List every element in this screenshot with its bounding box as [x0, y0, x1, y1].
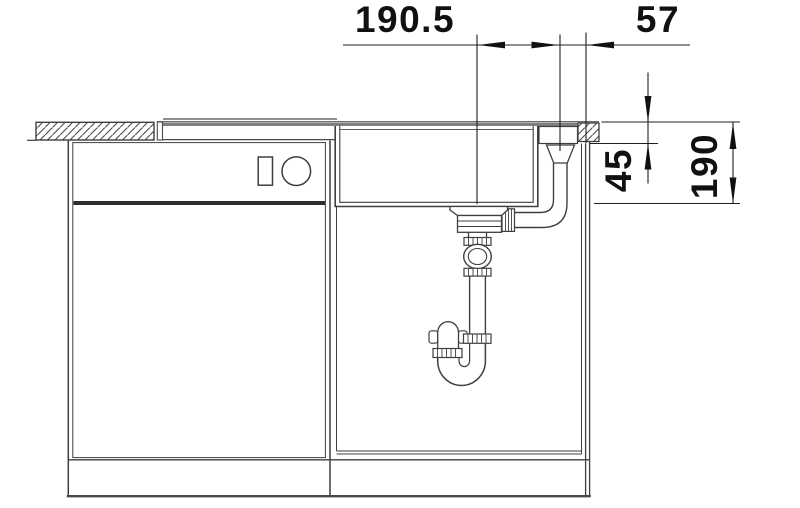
- dimension-label-bowl-depth: 190: [685, 106, 725, 226]
- arrow-down-190: [730, 178, 737, 204]
- arrow-up-190: [730, 123, 737, 149]
- arrow-left-57: [587, 42, 614, 49]
- wing-screw-left: [429, 331, 438, 343]
- dimension-label-edge-offset: 57: [598, 0, 718, 40]
- left-cabinet: [68, 141, 330, 497]
- siphon-trap: [429, 238, 491, 386]
- strainer-body: [458, 216, 502, 233]
- countertop-left-section: [27, 122, 154, 140]
- dimension-label-drain-offset: 190.5: [325, 0, 485, 40]
- sink-bowl: [335, 126, 538, 207]
- arrow-left-190p5: [478, 42, 505, 49]
- downpipe: [470, 276, 486, 334]
- arrow-up-45: [645, 144, 652, 170]
- drawing-canvas: [0, 0, 800, 508]
- trap-coupling-nut: [433, 349, 462, 358]
- control-rectangle-symbol: [258, 157, 272, 185]
- dimension-label-rim-depth: 45: [599, 110, 639, 230]
- sink-installation-drawing: 190.5 57 45 190: [0, 0, 800, 508]
- strainer-flange: [450, 207, 508, 216]
- drain-strainer: [450, 207, 508, 238]
- appliance-controls: [258, 157, 310, 186]
- coupling-nut-mid: [464, 268, 491, 276]
- trap-dome: [438, 322, 459, 349]
- countertop-right-section: [539, 123, 599, 144]
- arrow-right-190p5: [532, 42, 559, 49]
- arrow-down-45: [645, 96, 652, 122]
- coupling-nut-lower: [464, 334, 492, 343]
- control-knob-symbol: [282, 157, 311, 186]
